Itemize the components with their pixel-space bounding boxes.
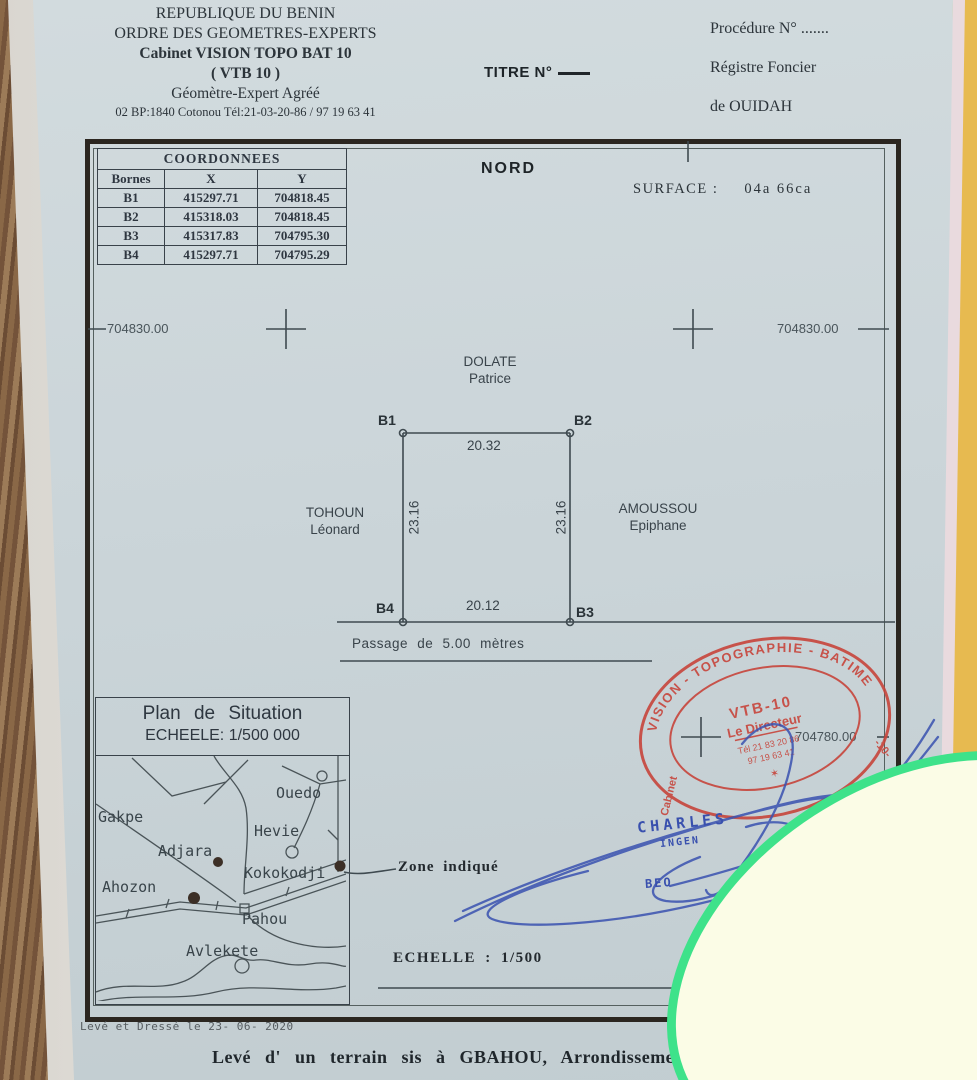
borne-id: B4 [98, 246, 165, 265]
corner-label-b3: B3 [576, 604, 594, 620]
situation-map-title: Plan de Situation [96, 703, 349, 725]
col-bornes: Bornes [98, 170, 165, 189]
place-adjara: Adjara [158, 842, 212, 860]
stamp-star: ✶ [769, 767, 781, 781]
col-x: X [165, 170, 258, 189]
road-crossing [204, 760, 248, 804]
grid-y-left: 704830.00 [107, 321, 168, 336]
scanned-survey-document: REPUBLIQUE DU BENIN ORDRE DES GEOMETRES-… [0, 0, 977, 1080]
place-gakpe: Gakpe [98, 808, 143, 826]
surface-line: SURFACE :04a 66ca [633, 181, 812, 198]
situation-map-scale: ECHEELE: 1/500 000 [96, 727, 349, 745]
kokokodji-dot [335, 861, 346, 872]
registry-block: Procédure N° ....... Régistre Foncier de… [710, 20, 829, 137]
neighbor-name: AMOUSSOU [608, 500, 708, 517]
road-ouedo [282, 766, 346, 784]
coordinates-table-title: COORDONNEES [98, 149, 347, 170]
title-number-label: TITRE N° [484, 64, 590, 81]
y-value: 704795.29 [258, 246, 347, 265]
neighbor-firstname: Léonard [290, 521, 380, 538]
neighbor-name: DOLATE [440, 353, 540, 370]
dimension-left: 23.16 [406, 501, 421, 535]
dimension-bottom: 20.12 [466, 598, 500, 613]
neighbor-firstname: Patrice [440, 370, 540, 387]
zone-indicated-label: Zone indiqué [398, 859, 499, 876]
coastline [96, 955, 346, 992]
y-value: 704818.45 [258, 208, 347, 227]
x-value: 415318.03 [165, 208, 258, 227]
east-neighbor: AMOUSSOU Epiphane [608, 500, 708, 534]
y-value: 704795.30 [258, 227, 347, 246]
west-neighbor: TOHOUN Léonard [290, 504, 380, 538]
dimension-top: 20.32 [467, 438, 501, 453]
surveyor-line: Géomètre-Expert Agréé [88, 84, 403, 104]
place-ahozon: Ahozon [102, 878, 156, 896]
ouedo-circle [317, 771, 327, 781]
title-number-blank-line [558, 72, 590, 75]
stamp-prefix: Cabinet [659, 775, 680, 817]
north-neighbor: DOLATE Patrice [440, 353, 540, 387]
x-value: 415297.71 [165, 189, 258, 208]
cabinet-acronym: ( VTB 10 ) [88, 64, 403, 84]
land-registry: Régistre Foncier [710, 59, 829, 77]
situation-map-title-block: Plan de Situation ECHEELE: 1/500 000 [96, 698, 349, 756]
corner-label-b4: B4 [376, 600, 394, 616]
blue-stamp-line3: BEO [645, 875, 674, 891]
place-pahou: Pahou [242, 910, 287, 928]
neighbor-firstname: Epiphane [608, 517, 708, 534]
situation-map: Gakpe Ouedo Hevie Adjara Kokokodji Ahozo… [96, 756, 346, 1001]
procedure-number: Procédure N° ....... [710, 20, 829, 38]
title-number-text: TITRE N° [484, 64, 552, 81]
passage-label: Passage de 5.00 mètres [352, 636, 524, 651]
place-kokokodji: Kokokodji [244, 864, 325, 882]
avlekete-circle [235, 959, 249, 973]
borne-id: B2 [98, 208, 165, 227]
x-value: 415297.71 [165, 246, 258, 265]
letterhead: REPUBLIQUE DU BENIN ORDRE DES GEOMETRES-… [88, 4, 403, 121]
country-line: REPUBLIQUE DU BENIN [88, 4, 403, 24]
coastline-2 [96, 986, 346, 1001]
main-scale-label: ECHELLE : 1/500 [393, 950, 543, 967]
col-y: Y [258, 170, 347, 189]
hevie-circle [286, 846, 298, 858]
surface-value: 04a 66ca [744, 181, 812, 197]
table-row: B4 415297.71 704795.29 [98, 246, 347, 265]
north-label: NORD [481, 160, 536, 178]
order-line: ORDRE DES GEOMETRES-EXPERTS [88, 24, 403, 44]
corner-label-b2: B2 [574, 412, 592, 428]
address-line: 02 BP:1840 Cotonou Tél:21-03-20-86 / 97 … [88, 104, 403, 121]
table-row: B2 415318.03 704818.45 [98, 208, 347, 227]
place-ouedo: Ouedo [276, 784, 321, 802]
situation-map-box: Plan de Situation ECHEELE: 1/500 000 [95, 697, 350, 1005]
borne-id: B3 [98, 227, 165, 246]
cabinet-line: Cabinet VISION TOPO BAT 10 [88, 44, 403, 64]
corner-label-b1: B1 [378, 412, 396, 428]
borne-id: B1 [98, 189, 165, 208]
grid-y-right: 704830.00 [777, 321, 838, 336]
table-row: B1 415297.71 704818.45 [98, 189, 347, 208]
y-value: 704818.45 [258, 189, 347, 208]
neighbor-name: TOHOUN [290, 504, 380, 521]
survey-date-line: Levé et Dressé le 23- 06- 2020 [80, 1020, 294, 1033]
registry-city: de OUIDAH [710, 98, 829, 116]
place-hevie: Hevie [254, 822, 299, 840]
surface-label: SURFACE : [633, 181, 718, 197]
parcel-description: Levé d' un terrain sis à GBAHOU, Arrondi… [212, 1047, 685, 1068]
hevie-tick [328, 830, 338, 840]
ahozon-dot [188, 892, 200, 904]
table-row: B3 415317.83 704795.30 [98, 227, 347, 246]
x-value: 415317.83 [165, 227, 258, 246]
coordinates-table: COORDONNEES Bornes X Y B1 415297.71 7048… [97, 148, 347, 265]
dimension-right: 23.16 [553, 501, 568, 535]
road-topleft [132, 758, 226, 796]
adjara-dot [213, 857, 223, 867]
place-avlekete: Avlekete [186, 942, 258, 960]
